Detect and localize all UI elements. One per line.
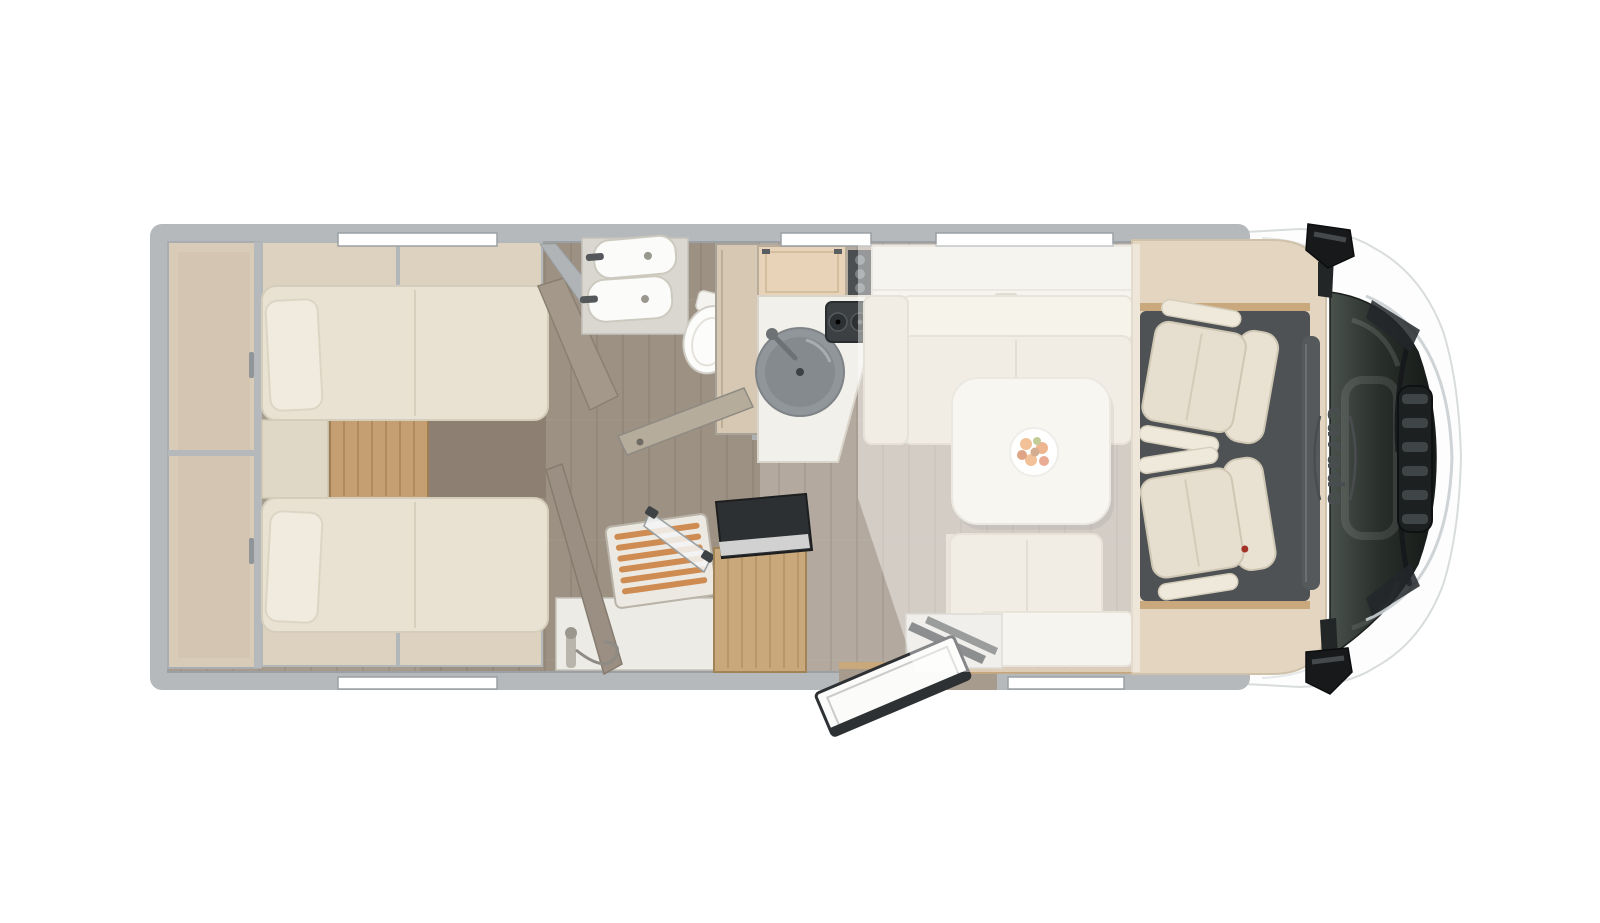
grille — [1398, 386, 1432, 532]
overhead-cabinet — [758, 246, 846, 298]
brand-logo-text: carado — [1322, 407, 1347, 509]
pillow-upper — [265, 299, 323, 412]
twin-bed-lower — [262, 498, 548, 632]
window-bottom-dinette — [1008, 677, 1124, 689]
pillow-lower — [265, 511, 323, 624]
motorhome-floorplan-image: carado — [0, 0, 1600, 923]
rear-wardrobe — [168, 242, 262, 668]
center-cushion — [262, 420, 328, 498]
shower-tray — [556, 598, 714, 670]
wardrobe-handle-bottom — [249, 538, 254, 564]
door-handle — [637, 439, 644, 446]
wardrobe-divider — [168, 450, 260, 456]
dashboard — [1302, 336, 1320, 590]
window-top-rear — [338, 233, 497, 246]
wardrobe-handle-top — [249, 352, 254, 378]
floorplan-canvas: carado — [0, 0, 1600, 923]
twin-bed-upper — [262, 286, 548, 420]
drop-down-bed-overlay — [858, 244, 1140, 672]
faucet-lower — [580, 295, 598, 303]
window-bottom-rear — [338, 677, 497, 689]
wardrobe-front-wall — [254, 242, 262, 668]
top-loading-cabinet — [714, 494, 812, 672]
window-top-kitchen — [781, 233, 871, 246]
cab-trim-bottom — [1140, 601, 1310, 609]
